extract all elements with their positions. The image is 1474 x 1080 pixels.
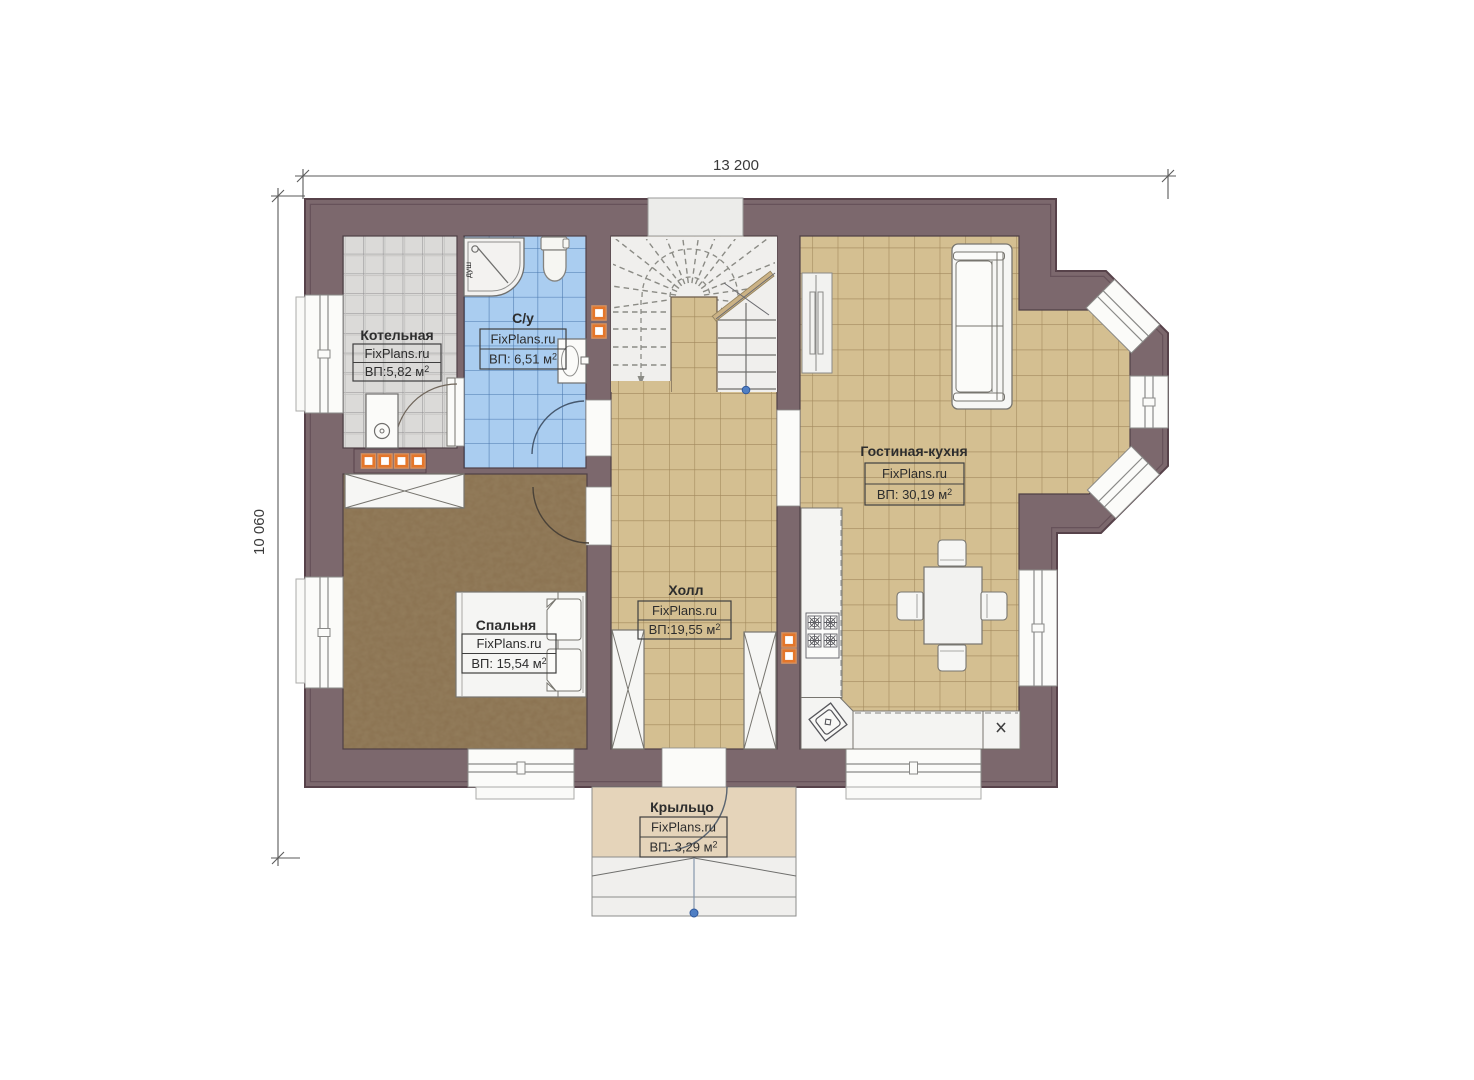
svg-text:ВП:19,55 м2: ВП:19,55 м2: [649, 622, 721, 637]
svg-text:ВП: 30,19 м2: ВП: 30,19 м2: [877, 487, 952, 502]
svg-text:Холл: Холл: [668, 582, 703, 598]
svg-text:FixPlans.ru: FixPlans.ru: [651, 820, 716, 835]
svg-text:Спальня: Спальня: [476, 617, 536, 633]
svg-text:ВП: 15,54 м2: ВП: 15,54 м2: [471, 656, 546, 671]
svg-text:ВП: 6,51 м2: ВП: 6,51 м2: [489, 352, 557, 367]
svg-text:Гостиная-кухня: Гостиная-кухня: [860, 443, 967, 459]
svg-text:FixPlans.ru: FixPlans.ru: [476, 636, 541, 651]
svg-text:FixPlans.ru: FixPlans.ru: [882, 466, 947, 481]
svg-text:Котельная: Котельная: [360, 327, 433, 343]
svg-text:ВП:5,82 м2: ВП:5,82 м2: [365, 364, 430, 379]
svg-text:FixPlans.ru: FixPlans.ru: [490, 332, 555, 347]
svg-text:10 060: 10 060: [251, 509, 268, 555]
svg-text:FixPlans.ru: FixPlans.ru: [652, 603, 717, 618]
svg-text:С/у: С/у: [512, 310, 534, 326]
svg-text:13 200: 13 200: [713, 157, 759, 174]
svg-text:душ: душ: [463, 262, 473, 278]
svg-text:Крыльцо: Крыльцо: [650, 799, 714, 815]
svg-text:FixPlans.ru: FixPlans.ru: [364, 346, 429, 361]
svg-text:ВП: 3,29 м2: ВП: 3,29 м2: [649, 840, 717, 855]
